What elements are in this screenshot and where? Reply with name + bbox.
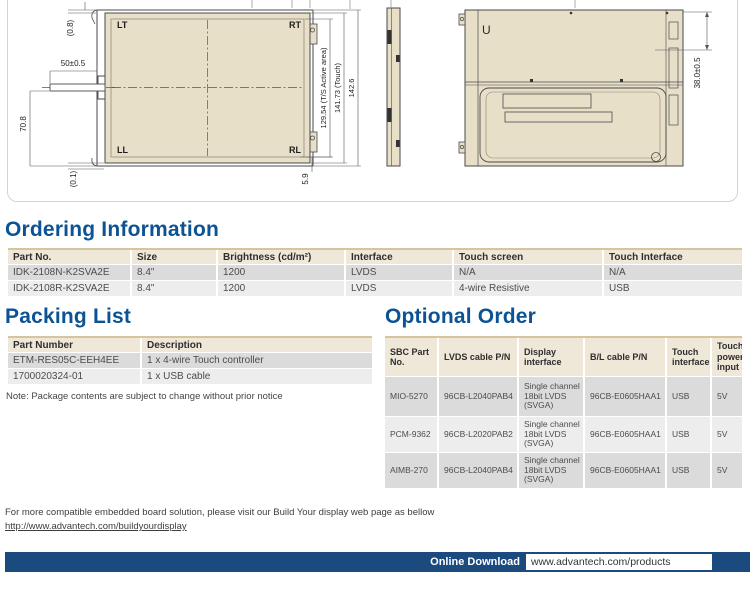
cell-brightness: 1200 <box>216 280 344 296</box>
table-row: AIMB-270 96CB-L2040PAB4 Single channel 1… <box>385 452 742 488</box>
cell-display-interface: Single channel 18bit LVDS (SVGA) <box>517 376 583 416</box>
corner-label-rl: RL <box>289 145 301 155</box>
packing-header-row: Part Number Description <box>8 336 372 352</box>
optional-header-display-interface: Display interface <box>517 338 583 376</box>
online-download-bar: Online Download www.advantech.com/produc… <box>5 552 750 572</box>
table-row: 1700020324-01 1 x USB cable <box>8 368 372 384</box>
dim-bottom-gap: (0.1) <box>69 170 78 187</box>
corner-label-rt: RT <box>289 20 301 30</box>
dim-depth: 38.0±0.5 <box>693 57 702 89</box>
ordering-information-title: Ordering Information <box>5 218 219 242</box>
mechanical-drawing: LT RT LL RL (0.8) 50±0.5 70.8 (0.1) 5.9 … <box>0 0 750 205</box>
table-row: MIO-5270 96CB-L2040PAB4 Single channel 1… <box>385 376 742 416</box>
cell-size: 8.4" <box>130 264 216 280</box>
cell-interface: LVDS <box>344 264 452 280</box>
cell-touch-interface: USB <box>665 416 710 452</box>
ordering-header-brightness: Brightness (cd/m²) <box>216 250 344 264</box>
corner-label-ll: LL <box>117 145 128 155</box>
dim-active-area: 129.54 (T/S Active area) <box>319 47 328 128</box>
cell-lvds-cable: 96CB-L2040PAB4 <box>437 452 517 488</box>
ordering-header-part-no: Part No. <box>8 250 130 264</box>
packing-list-title: Packing List <box>5 305 131 329</box>
cell-description: 1 x 4-wire Touch controller <box>140 352 372 368</box>
cell-touch-screen: N/A <box>452 264 602 280</box>
cell-bl-cable: 96CB-E0605HAA1 <box>583 416 665 452</box>
cell-bl-cable: 96CB-E0605HAA1 <box>583 452 665 488</box>
cell-part-number: ETM-RES05C-EEH4EE <box>8 352 140 368</box>
optional-order-title: Optional Order <box>385 305 536 329</box>
cell-touch-interface: USB <box>665 452 710 488</box>
cell-bl-cable: 96CB-E0605HAA1 <box>583 376 665 416</box>
download-url-box[interactable]: www.advantech.com/products <box>526 554 712 570</box>
cell-description: 1 x USB cable <box>140 368 372 384</box>
online-download-label: Online Download <box>430 556 520 568</box>
cell-interface: LVDS <box>344 280 452 296</box>
cell-display-interface: Single channel 18bit LVDS (SVGA) <box>517 452 583 488</box>
optional-header-row: SBC Part No. LVDS cable P/N Display inte… <box>385 336 742 376</box>
ordering-header-interface: Interface <box>344 250 452 264</box>
table-row: ETM-RES05C-EEH4EE 1 x 4-wire Touch contr… <box>8 352 372 368</box>
ordering-header-row: Part No. Size Brightness (cd/m²) Interfa… <box>8 248 742 264</box>
cell-display-interface: Single channel 18bit LVDS (SVGA) <box>517 416 583 452</box>
packing-note: Note: Package contents are subject to ch… <box>6 391 283 402</box>
table-row: IDK-2108R-K2SVA2E 8.4" 1200 LVDS 4-wire … <box>8 280 742 296</box>
cutoff-lines <box>252 0 575 9</box>
dim-top-gap: (0.8) <box>66 19 75 36</box>
optional-header-lvds-cable: LVDS cable P/N <box>437 338 517 376</box>
table-row: PCM-9362 96CB-L2020PAB2 Single channel 1… <box>385 416 742 452</box>
cell-lvds-cable: 96CB-L2020PAB2 <box>437 416 517 452</box>
cell-touch-power: 5V <box>710 416 742 452</box>
cell-touch-power: 5V <box>710 452 742 488</box>
cell-touch-interface: USB <box>602 280 742 296</box>
optional-order-table: SBC Part No. LVDS cable P/N Display inte… <box>385 336 742 488</box>
cell-sbc-part: AIMB-270 <box>385 452 437 488</box>
ordering-header-touch-screen: Touch screen <box>452 250 602 264</box>
optional-header-sbc: SBC Part No. <box>385 338 437 376</box>
optional-header-touch-interface: Touch interface <box>665 338 710 376</box>
packing-list-table: Part Number Description ETM-RES05C-EEH4E… <box>8 336 372 384</box>
buildyourdisplay-link[interactable]: http://www.advantech.com/buildyourdispla… <box>5 521 187 532</box>
cell-part-number: 1700020324-01 <box>8 368 140 384</box>
side-view <box>387 8 400 166</box>
dim-overall: 142.6 <box>347 79 356 98</box>
cell-brightness: 1200 <box>216 264 344 280</box>
u-mark: U <box>482 23 491 37</box>
cell-lvds-cable: 96CB-L2040PAB4 <box>437 376 517 416</box>
cell-touch-screen: 4-wire Resistive <box>452 280 602 296</box>
optional-header-bl-cable: B/L cable P/N <box>583 338 665 376</box>
dim-tail-width: 50±0.5 <box>61 59 86 68</box>
footer-note: For more compatible embedded board solut… <box>5 507 434 518</box>
ordering-header-touch-interface: Touch Interface <box>602 250 742 264</box>
optional-header-touch-power: Touch power input <box>710 338 742 376</box>
cell-touch-power: 5V <box>710 376 742 416</box>
datasheet-page: { "colors": { "accent_blue": "#0b5394", … <box>0 0 750 591</box>
cell-sbc-part: PCM-9362 <box>385 416 437 452</box>
corner-label-lt: LT <box>117 20 128 30</box>
ordering-header-size: Size <box>130 250 216 264</box>
table-row: IDK-2108N-K2SVA2E 8.4" 1200 LVDS N/A N/A <box>8 264 742 280</box>
cell-touch-interface: N/A <box>602 264 742 280</box>
ordering-information-table: Part No. Size Brightness (cd/m²) Interfa… <box>8 248 742 296</box>
cell-part-no: IDK-2108N-K2SVA2E <box>8 264 130 280</box>
packing-header-description: Description <box>140 338 372 352</box>
cell-sbc-part: MIO-5270 <box>385 376 437 416</box>
dim-tail-height: 70.8 <box>19 116 28 132</box>
packing-header-part-number: Part Number <box>8 338 140 352</box>
cell-part-no: IDK-2108R-K2SVA2E <box>8 280 130 296</box>
dim-touch: 141.73 (Touch) <box>333 62 342 113</box>
dim-bottom-offset: 5.9 <box>301 173 310 185</box>
cell-touch-interface: USB <box>665 376 710 416</box>
front-view: LT RT LL RL (0.8) 50±0.5 70.8 (0.1) 5.9 … <box>19 2 361 187</box>
cell-size: 8.4" <box>130 280 216 296</box>
back-view: U 38.0±0.5 <box>459 10 712 166</box>
